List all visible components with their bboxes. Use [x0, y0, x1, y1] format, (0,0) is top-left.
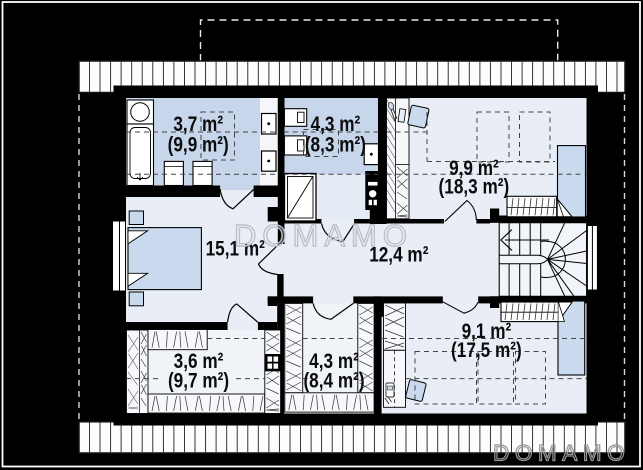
svg-text:(18,3 m²): (18,3 m²) — [439, 175, 510, 199]
svg-text:DOMAMO: DOMAMO — [493, 440, 630, 465]
svg-text:(8,3 m²): (8,3 m²) — [305, 133, 366, 157]
svg-text:(17,5 m²): (17,5 m²) — [451, 338, 522, 362]
svg-text:(9,7 m²): (9,7 m²) — [168, 369, 229, 393]
svg-text:(8,4 m²): (8,4 m²) — [303, 369, 364, 393]
svg-text:(9,9 m²): (9,9 m²) — [168, 133, 229, 157]
svg-text:DOMAMO: DOMAMO — [234, 218, 413, 253]
